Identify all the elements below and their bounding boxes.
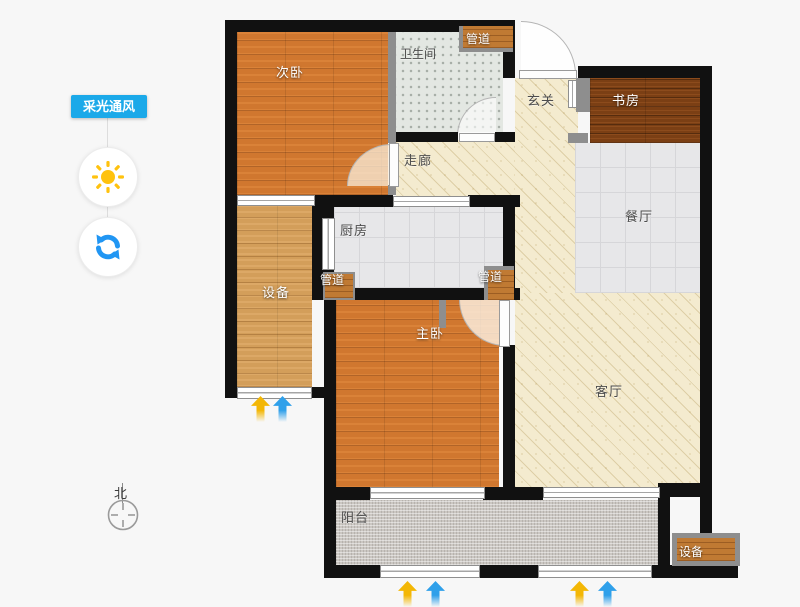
window bbox=[370, 487, 485, 499]
wall bbox=[578, 66, 712, 78]
refresh-icon bbox=[92, 231, 124, 263]
sun-icon bbox=[91, 160, 125, 194]
room-label-dining: 餐厅 bbox=[625, 206, 653, 225]
wall bbox=[503, 345, 515, 488]
north-label: 北 bbox=[114, 483, 128, 502]
wall bbox=[658, 497, 670, 567]
entry-door-leaf bbox=[519, 70, 577, 79]
wall bbox=[324, 565, 380, 578]
room-label-corridor: 走廊 bbox=[404, 150, 432, 169]
balcony-area bbox=[336, 500, 658, 565]
study-area bbox=[590, 78, 700, 143]
partition-wall bbox=[576, 78, 590, 112]
room-label-study: 书房 bbox=[612, 90, 640, 109]
room-label-balcony: 阳台 bbox=[341, 507, 369, 526]
wall bbox=[658, 483, 712, 497]
wall bbox=[322, 205, 334, 218]
secondary-bedroom-door-leaf bbox=[389, 143, 399, 187]
window bbox=[543, 487, 660, 498]
room-label-entry-hall: 玄关 bbox=[527, 90, 555, 109]
hall-column-area bbox=[515, 140, 575, 293]
master-bedroom-door-leaf bbox=[499, 300, 510, 347]
window bbox=[237, 387, 312, 399]
room-label-pipe-top: 管道 bbox=[466, 30, 490, 47]
light-arrow-icon bbox=[398, 581, 417, 607]
window bbox=[568, 80, 577, 108]
wall bbox=[483, 487, 543, 500]
partition-wall bbox=[568, 133, 588, 143]
entry-door-arc bbox=[521, 21, 576, 75]
wall bbox=[325, 487, 370, 500]
room-label-secondary-bedroom: 次卧 bbox=[276, 62, 304, 81]
bathroom-door-leaf bbox=[459, 133, 495, 142]
wall bbox=[324, 300, 336, 578]
daylight-button[interactable] bbox=[78, 147, 138, 207]
window bbox=[237, 195, 315, 206]
room-label-pipe-kitchen-left: 管道 bbox=[320, 271, 344, 288]
window bbox=[538, 565, 652, 578]
wind-arrow-icon bbox=[598, 581, 617, 607]
wall bbox=[700, 66, 712, 537]
light-arrow-icon bbox=[251, 396, 270, 422]
room-label-kitchen: 厨房 bbox=[340, 220, 368, 239]
wall bbox=[495, 132, 515, 142]
light-arrow-icon bbox=[570, 581, 589, 607]
wall bbox=[310, 387, 325, 398]
room-label-bathroom: 卫生间 bbox=[400, 45, 436, 62]
room-label-equipment-left: 设备 bbox=[262, 282, 290, 301]
wall bbox=[390, 132, 458, 142]
wind-arrow-icon bbox=[273, 396, 292, 422]
compass-icon bbox=[105, 499, 141, 533]
window bbox=[380, 565, 480, 578]
room-label-equipment-bottom-right: 设备 bbox=[679, 543, 703, 560]
wall bbox=[225, 20, 237, 398]
room-label-living: 客厅 bbox=[595, 381, 623, 400]
wall bbox=[478, 565, 538, 578]
wind-arrow-icon bbox=[426, 581, 445, 607]
lighting-ventilation-toggle-button[interactable]: 采光通风 bbox=[71, 95, 147, 118]
room-label-pipe-kitchen-right: 管道 bbox=[478, 268, 502, 285]
rotate-button[interactable] bbox=[78, 217, 138, 277]
window bbox=[322, 218, 335, 270]
room-label-master-bedroom: 主卧 bbox=[416, 323, 444, 342]
partition-wall bbox=[388, 32, 396, 143]
window bbox=[393, 196, 470, 207]
